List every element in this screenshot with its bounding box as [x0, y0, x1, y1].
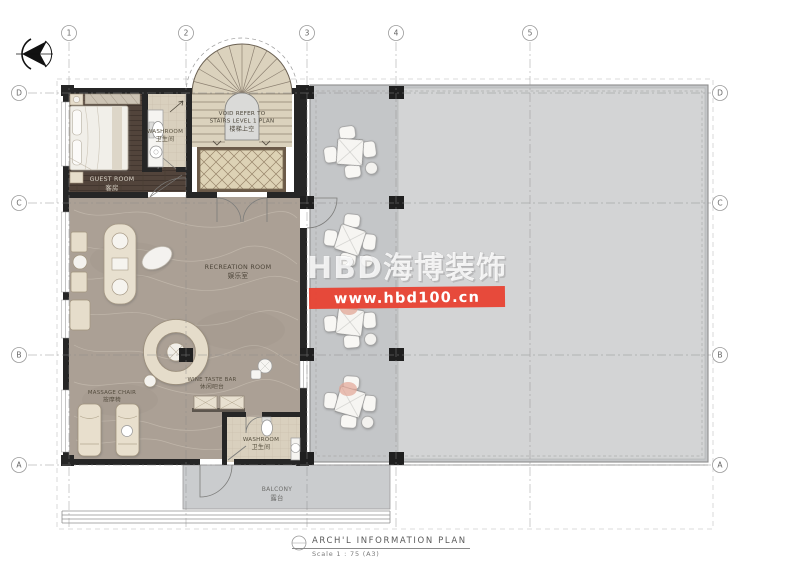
grid-bubble-row-C-left: C	[12, 196, 27, 211]
washroom-top-label: WASHROOM	[147, 129, 183, 135]
grid-bubble-row-C-right: C	[713, 196, 728, 211]
grid-bubble-row-A-left: A	[12, 458, 27, 473]
drawing-title: ARCH'L INFORMATION PLAN	[312, 536, 467, 546]
balcony-railing	[62, 511, 390, 523]
recreation-room-label: RECREATION ROOM	[205, 263, 272, 271]
stair-note-line2: STAIRS LEVEL 1 PLAN	[210, 119, 275, 125]
balcony-label-cn: 露台	[270, 493, 283, 502]
watermark-url: www.hbd100.cn	[334, 290, 480, 308]
grid-bubble-row-B-left: B	[12, 348, 27, 363]
north-arrow-icon	[16, 39, 53, 69]
entry-rug	[197, 147, 286, 192]
grid-label: D	[16, 89, 22, 98]
stair-note-cn: 楼梯上空	[229, 125, 254, 133]
massage-label: MASSAGE CHAIR	[88, 390, 136, 396]
massage-label-cn: 按摩椅	[103, 396, 121, 404]
sink	[291, 444, 300, 453]
grid-bubble-row-D-right: D	[713, 86, 728, 101]
bar-label-cn: 休闲吧台	[200, 383, 224, 391]
guest-room-label-cn: 客房	[105, 183, 118, 192]
pink-cushion	[339, 382, 357, 396]
stair-note-line1: VOID REFER TO	[219, 111, 266, 117]
grid-bubble-col-5: 5	[523, 26, 538, 41]
grid-bubble-col-3: 3	[300, 26, 315, 41]
grid-label: C	[717, 199, 722, 208]
balcony	[62, 465, 390, 523]
grid-label: C	[16, 199, 21, 208]
sink	[150, 146, 162, 158]
grid-label: 3	[305, 29, 310, 38]
grid-label: D	[717, 89, 723, 98]
grid-label: A	[16, 461, 22, 470]
grid-label: 1	[67, 29, 72, 38]
title-block: ARCH'L INFORMATION PLAN Scale 1 : 75 (A3…	[292, 536, 470, 558]
grid-label: 4	[394, 29, 399, 38]
grid-bubble-col-2: 2	[179, 26, 194, 41]
grid-label: B	[717, 351, 722, 360]
grid-label: 2	[184, 29, 189, 38]
bar-label: WINE TASTE BAR	[187, 377, 236, 383]
grid-label: A	[717, 461, 723, 470]
wall-chair	[71, 272, 87, 292]
guest-room-label: GUEST ROOM	[90, 176, 135, 183]
toilet	[262, 420, 273, 436]
bed	[70, 106, 128, 170]
grid-bubble-col-4: 4	[389, 26, 404, 41]
grid-label: 5	[528, 29, 533, 38]
grid-bubble-row-D-left: D	[12, 86, 27, 101]
game-table	[104, 224, 136, 304]
grid-bubble-row-B-right: B	[713, 348, 728, 363]
drawing-scale: Scale 1 : 75 (A3)	[312, 550, 380, 558]
washroom-bottom-label-cn: 卫生间	[252, 443, 271, 451]
watermark-brand: HBD海博装饰	[307, 251, 507, 286]
washroom-top-label-cn: 卫生间	[156, 135, 175, 143]
grid-label: B	[16, 351, 21, 360]
wardrobe	[85, 94, 140, 104]
watermark: HBD海博装饰 HBD海博装饰 www.hbd100.cn	[307, 251, 508, 309]
wall-seat	[70, 300, 90, 330]
bed-bench	[70, 172, 83, 183]
side-table	[73, 255, 87, 269]
washroom-bottom-label: WASHROOM	[243, 437, 279, 443]
grid-bubble-col-1: 1	[62, 26, 77, 41]
floorplan-drawing: 1 2 3 4 5 D C B A D C B A GUEST ROOM 客房 …	[0, 0, 800, 566]
grid-bubble-row-A-right: A	[713, 458, 728, 473]
balcony-label: BALCONY	[262, 486, 292, 493]
floorplan-page: 1 2 3 4 5 D C B A D C B A GUEST ROOM 客房 …	[0, 0, 800, 566]
recreation-room-label-cn: 娱乐室	[228, 271, 249, 280]
wall-chair	[71, 232, 87, 252]
